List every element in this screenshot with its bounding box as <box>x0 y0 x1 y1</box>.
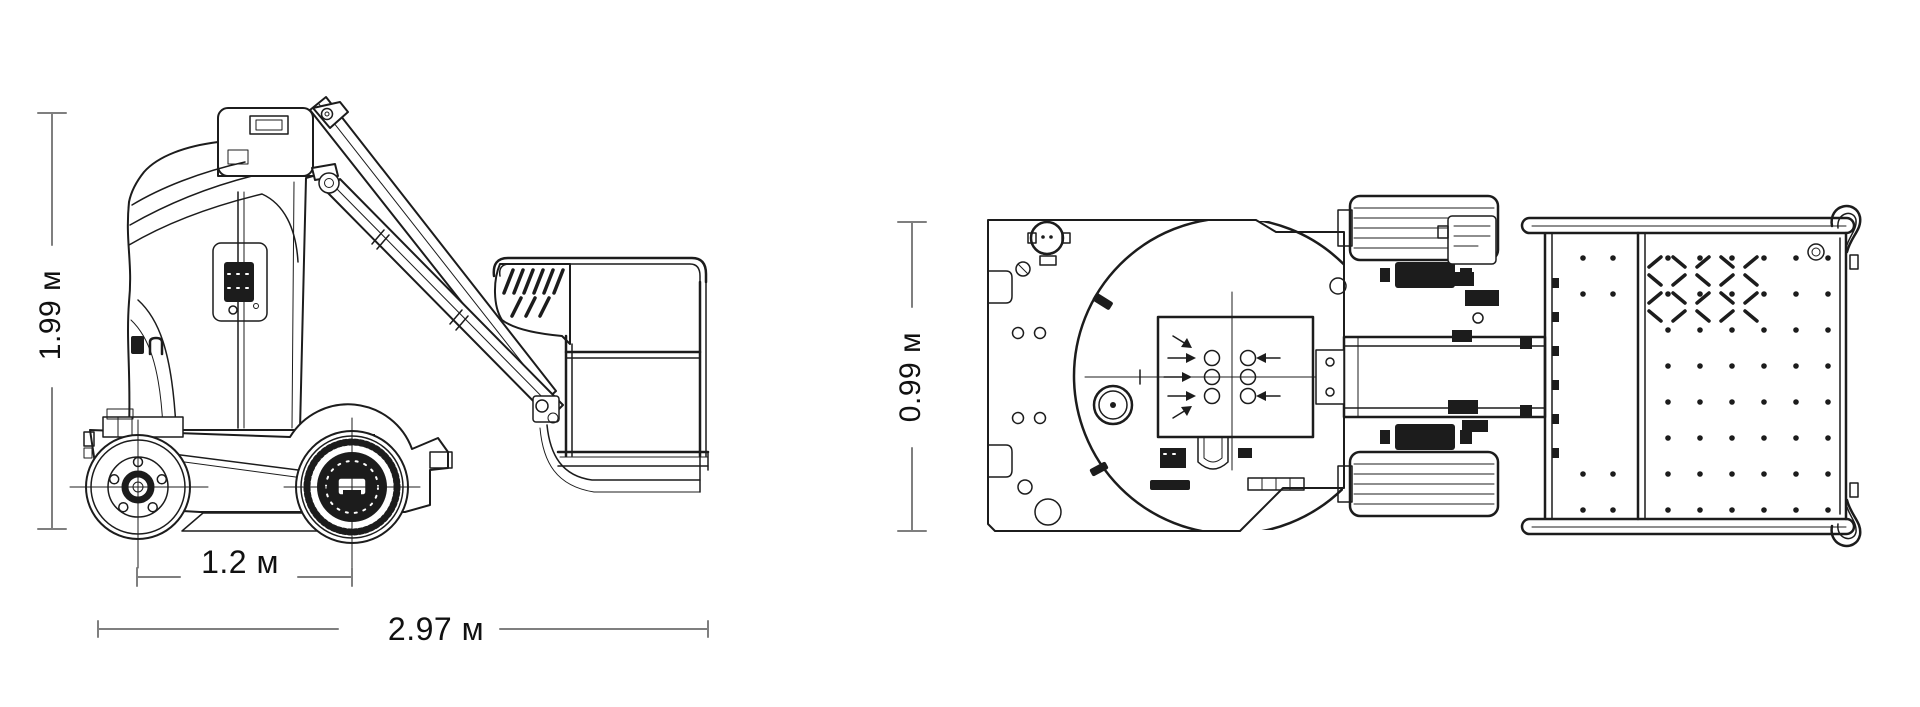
turntable-plate <box>1158 317 1313 437</box>
connector-block <box>1238 448 1252 458</box>
floor-perforation <box>1761 255 1767 261</box>
control-panel-display <box>224 262 254 302</box>
diamond-plate-mark <box>1745 311 1757 321</box>
floor-perforation <box>1729 291 1735 297</box>
floor-perforation <box>1761 507 1767 513</box>
dimension-length: 2.97 м <box>98 611 708 647</box>
linkage-block <box>1448 400 1478 414</box>
floor-perforation <box>1665 471 1671 477</box>
dimension-height: 1.99 м <box>34 113 67 529</box>
floor-perforation <box>1580 507 1586 513</box>
floor-tab <box>1552 448 1559 458</box>
filler-cap-center <box>1110 402 1116 408</box>
chassis-step <box>1150 480 1190 490</box>
floor-perforation <box>1729 471 1735 477</box>
floor-perforation <box>1580 471 1586 477</box>
diamond-plate-mark <box>1673 293 1685 303</box>
floor-perforation <box>1697 363 1703 369</box>
diamond-plate-mark <box>1745 257 1757 267</box>
floor-perforation <box>1729 435 1735 441</box>
boom-end-block <box>1520 337 1532 349</box>
cap-dot <box>1041 235 1045 239</box>
knuckle-bit <box>1460 430 1472 444</box>
pivot-pin <box>319 173 339 193</box>
floor-perforation <box>1825 363 1831 369</box>
diamond-plate-mark <box>1673 275 1685 285</box>
floor-perforation <box>1697 291 1703 297</box>
length-dimension-label: 2.97 м <box>388 611 484 647</box>
diamond-plate-mark <box>1673 257 1685 267</box>
floor-edge-tabs <box>1552 278 1559 458</box>
floor-perforation <box>1665 435 1671 441</box>
floor-perforation <box>1793 255 1799 261</box>
top-view: 0.99 м <box>894 196 1860 546</box>
floor-perforation <box>1580 255 1586 261</box>
boom-edge-line <box>319 104 549 397</box>
floor-tab <box>1552 414 1559 424</box>
diamond-plate-mark <box>1697 311 1709 321</box>
wheel-plan-bottom <box>1338 424 1498 516</box>
floor-perforation <box>1697 255 1703 261</box>
floor-perforation <box>1729 327 1735 333</box>
floor-perforation <box>1825 327 1831 333</box>
hook-base <box>1850 483 1858 497</box>
floor-perforation <box>1697 399 1703 405</box>
floor-tab <box>1552 346 1559 356</box>
linkage-block <box>1448 272 1474 286</box>
floor-perforation <box>1665 507 1671 513</box>
dimension-drawing-canvas: 1.99 м <box>0 0 1920 707</box>
diamond-plate-mark <box>1649 275 1661 285</box>
side-view: 1.99 м <box>34 97 708 647</box>
upper-boom-beam <box>310 97 556 404</box>
battery-box <box>103 417 183 437</box>
linkage-block <box>1452 330 1472 342</box>
anchor-ring-inner <box>1812 248 1820 256</box>
linkage-block <box>1462 420 1488 432</box>
floor-perforation <box>1761 399 1767 405</box>
diamond-plate-hatch <box>1649 257 1757 321</box>
floor-perforation <box>1793 435 1799 441</box>
steer-knuckle <box>1395 262 1455 288</box>
diamond-plate-mark <box>1649 293 1661 303</box>
floor-perforation <box>1729 399 1735 405</box>
floor-perforation <box>1610 471 1616 477</box>
diamond-plate-mark <box>1721 311 1733 321</box>
floor-perforation <box>1610 507 1616 513</box>
floor-perforation <box>1697 435 1703 441</box>
boom-end-block <box>1520 405 1532 417</box>
floor-support-curve <box>540 428 700 492</box>
floor-perforation <box>1729 255 1735 261</box>
floor-perforation <box>1793 399 1799 405</box>
floor-perforation <box>1610 255 1616 261</box>
floor-perforation <box>1665 255 1671 261</box>
width-dimension-label: 0.99 м <box>894 332 927 422</box>
floor-perforation <box>1665 399 1671 405</box>
diamond-plate-mark <box>1649 257 1661 267</box>
floor-perforation <box>1825 507 1831 513</box>
floor-perforation <box>1825 471 1831 477</box>
floor-perforation <box>1610 291 1616 297</box>
floor-perforation <box>1665 363 1671 369</box>
boom-plan <box>1316 337 1545 417</box>
floor-perforation <box>1825 435 1831 441</box>
floor-perforation <box>1729 363 1735 369</box>
floor-perforation <box>1793 291 1799 297</box>
floor-perforation <box>1825 291 1831 297</box>
knuckle-bit <box>1380 268 1390 282</box>
floor-perforation <box>1761 327 1767 333</box>
floor-perforation <box>1665 291 1671 297</box>
diamond-plate-mark <box>1649 311 1661 321</box>
platform-plan <box>1522 206 1860 546</box>
dimension-width: 0.99 м <box>894 222 927 531</box>
cap-dot <box>1049 235 1053 239</box>
floor-perforation <box>1825 255 1831 261</box>
floor-perforation <box>1761 471 1767 477</box>
floor-perforation <box>1761 435 1767 441</box>
boom-beam-plan <box>1344 337 1545 417</box>
diamond-plate-mark <box>1697 275 1709 285</box>
hook-base <box>1850 255 1858 269</box>
mast-head <box>218 108 313 176</box>
wheelbase-dimension-label: 1.2 м <box>201 544 279 580</box>
floor-perforation <box>1697 471 1703 477</box>
floor-perforation <box>1793 327 1799 333</box>
diamond-plate-mark <box>1745 275 1757 285</box>
floor-tab <box>1552 380 1559 390</box>
anchor-ring <box>1808 244 1824 260</box>
dimension-wheelbase: 1.2 м <box>137 544 352 586</box>
knuckle-bit <box>1380 430 1390 444</box>
floor-perforation <box>1697 327 1703 333</box>
floor-perforation <box>1761 291 1767 297</box>
floor-perforation <box>1580 291 1586 297</box>
mast-body <box>128 102 348 430</box>
floor-perforation <box>1665 327 1671 333</box>
floor-perforation <box>1761 363 1767 369</box>
diamond-plate-mark <box>1673 311 1685 321</box>
linkage-pin <box>1473 313 1483 323</box>
console-box <box>1448 216 1496 264</box>
floor-perforation <box>1825 399 1831 405</box>
floor-perforation <box>1729 507 1735 513</box>
floor-perforation <box>1793 471 1799 477</box>
front-step <box>84 448 92 458</box>
diamond-plate-mark <box>1721 275 1733 285</box>
floor-perforation <box>1793 363 1799 369</box>
floor-perforation <box>1793 507 1799 513</box>
pivot-pin <box>322 109 333 120</box>
floor-tab <box>1552 312 1559 322</box>
machine-dimension-diagram: 1.99 м <box>0 0 1920 707</box>
floor-tab <box>1552 278 1559 288</box>
steer-knuckle <box>1395 424 1455 450</box>
valve-block <box>1160 448 1186 468</box>
diamond-plate-mark <box>1745 293 1757 303</box>
height-dimension-label: 1.99 м <box>34 270 67 360</box>
floor-perforation <box>1697 507 1703 513</box>
logo-glyph <box>131 336 144 354</box>
linkage-block <box>1465 290 1499 306</box>
